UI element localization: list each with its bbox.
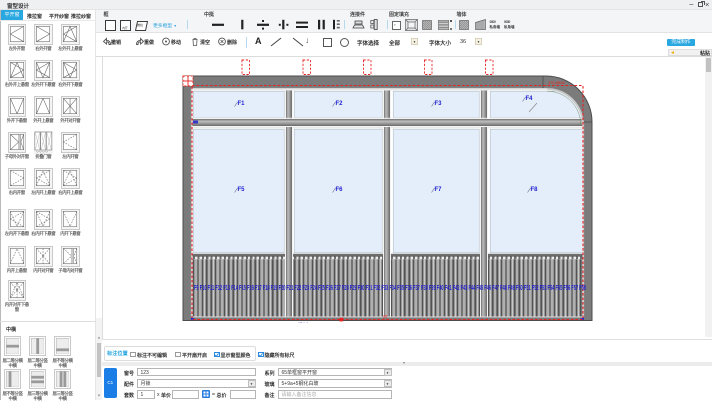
svg-text:F7: F7 [434, 187, 442, 193]
svg-text:88: 88 [383, 314, 388, 319]
svg-text:F4: F4 [525, 96, 533, 102]
svg-text:F1: F1 [237, 101, 245, 107]
svg-text:F8: F8 [530, 187, 538, 193]
svg-text:F9 F10 F11 F12 F13 F14 F15 F16: F9 F10 F11 F12 F13 F14 F15 F16 F17 F18 F… [194, 285, 586, 292]
svg-text:F2: F2 [335, 101, 343, 107]
svg-text:170.8508: 170.8508 [548, 80, 565, 85]
svg-text:F3: F3 [434, 101, 442, 107]
svg-text:F5: F5 [237, 187, 245, 193]
svg-text:434.1: 434.1 [297, 322, 309, 324]
svg-text:F6: F6 [335, 187, 343, 193]
